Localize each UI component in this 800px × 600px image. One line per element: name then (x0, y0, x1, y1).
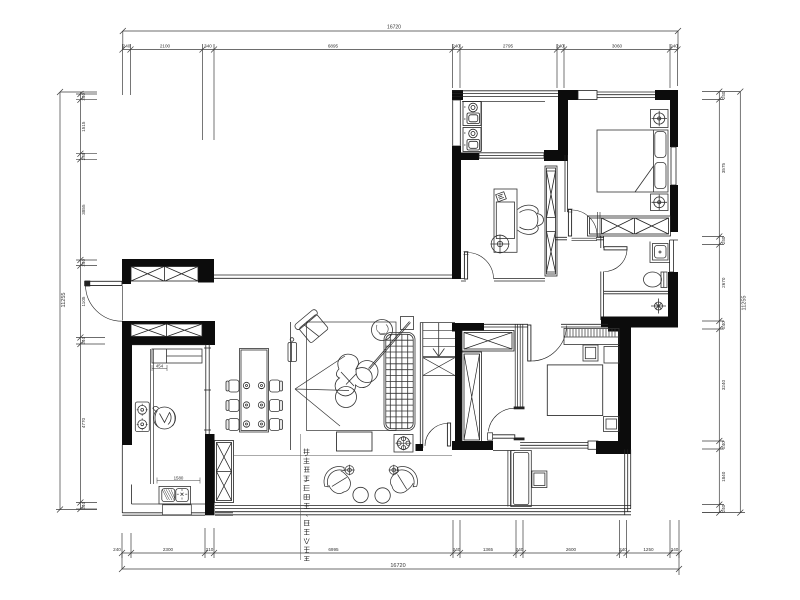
svg-text:240: 240 (721, 321, 726, 329)
svg-text:11255: 11255 (61, 293, 67, 308)
svg-text:1580: 1580 (174, 476, 184, 481)
svg-text:454: 454 (156, 364, 164, 369)
svg-text:240: 240 (81, 336, 86, 344)
svg-text:2670: 2670 (721, 277, 726, 288)
svg-text:240: 240 (113, 547, 121, 552)
svg-text:240: 240 (453, 547, 461, 552)
svg-text:240: 240 (123, 44, 131, 49)
svg-text:240: 240 (452, 44, 460, 49)
svg-text:1105: 1105 (81, 296, 86, 306)
svg-text:240: 240 (81, 259, 86, 267)
svg-text:240: 240 (81, 93, 86, 101)
svg-text:16720: 16720 (387, 25, 401, 31)
svg-text:240: 240 (619, 547, 627, 552)
svg-text:11255: 11255 (742, 296, 748, 311)
svg-text:240: 240 (721, 504, 726, 512)
svg-text:240: 240 (516, 547, 524, 552)
svg-text:1515: 1515 (81, 121, 86, 132)
svg-text:16720: 16720 (390, 563, 405, 569)
svg-text:240: 240 (81, 152, 86, 160)
svg-text:240: 240 (81, 501, 86, 509)
svg-text:240: 240 (671, 547, 679, 552)
svg-text:4770: 4770 (81, 417, 86, 428)
svg-text:240: 240 (670, 44, 678, 49)
svg-text:6995: 6995 (328, 547, 339, 552)
svg-text:1840: 1840 (721, 471, 726, 482)
svg-text:3060: 3060 (612, 44, 623, 49)
svg-text:240: 240 (721, 441, 726, 449)
svg-text:2600: 2600 (566, 547, 577, 552)
svg-text:6895: 6895 (328, 44, 339, 49)
svg-text:3240: 3240 (721, 379, 726, 390)
svg-text:210: 210 (206, 547, 214, 552)
svg-text:2795: 2795 (503, 44, 514, 49)
svg-text:2100: 2100 (160, 44, 171, 49)
svg-text:2300: 2300 (163, 547, 174, 552)
svg-text:240: 240 (721, 236, 726, 244)
svg-text:1365: 1365 (483, 547, 494, 552)
svg-text:240: 240 (556, 44, 564, 49)
svg-text:3855: 3855 (81, 204, 86, 215)
svg-text:3575: 3575 (721, 162, 726, 173)
svg-text:340: 340 (204, 44, 212, 49)
svg-text:1250: 1250 (643, 547, 654, 552)
svg-text:240: 240 (721, 91, 726, 99)
